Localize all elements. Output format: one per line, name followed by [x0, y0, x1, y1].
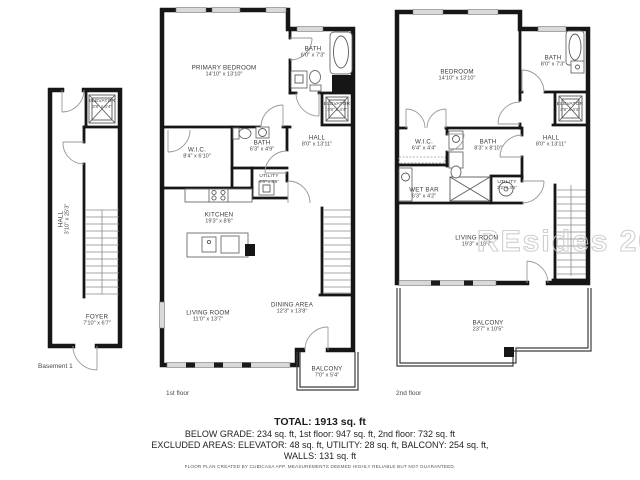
room-label-basement-foyer: FOYER7'10" x 6'7" [83, 314, 111, 327]
floor-label-second: 2nd floor [396, 390, 421, 397]
total-area: TOTAL: 1913 sq. ft [0, 417, 640, 429]
floor-label-basement: Basement 1 [38, 363, 73, 370]
room-label-f2-bedroom: BEDROOM14'10" x 13'10" [439, 69, 476, 82]
toilet-icon [449, 152, 463, 178]
room-label-f2-elevator: ELEVATOR3'8" x 4'4" [557, 102, 583, 112]
shower-icon [450, 177, 490, 201]
sink-icon [291, 71, 307, 88]
room-label-f2-hall: HALL8'0" x 13'11" [536, 135, 566, 148]
kitchen-counter-icon [185, 189, 252, 202]
room-label-f2-utility: UTILITY3'2" x 3'6" [497, 180, 517, 190]
room-label-f1-living-room: LIVING ROOM11'0" x 13'7" [186, 310, 229, 323]
toilet-icon [310, 71, 322, 92]
area-breakdown: BELOW GRADE: 234 sq. ft, 1st floor: 947 … [0, 429, 640, 440]
bathtub-icon [566, 31, 584, 65]
basement-stairs-icon [86, 210, 119, 294]
elevator-icon [84, 92, 119, 127]
room-label-f2-wet-bar: WET BAR6'3" x 4'2" [409, 187, 438, 200]
room-label-f1-balcony: BALCONY7'0" x 5'4" [312, 366, 343, 379]
wall-chase [332, 75, 352, 92]
room-label-f2-bath-top: BATH8'0" x 7'3" [541, 55, 565, 68]
area-summary: TOTAL: 1913 sq. ft BELOW GRADE: 234 sq. … [0, 417, 640, 469]
kitchen-island-icon [187, 233, 255, 257]
excluded-areas: EXCLUDED AREAS: ELEVATOR: 48 sq. ft, UTI… [0, 440, 640, 451]
bathtub-icon [330, 32, 352, 74]
room-label-f1-dining-area: DINING AREA12'3" x 13'8" [271, 302, 313, 315]
disclaimer: FLOOR PLAN CREATED BY CUBICASA APP. MEAS… [0, 464, 640, 469]
room-label-f2-wic: W.I.C.6'4" x 4'4" [412, 139, 436, 152]
room-label-basement-elevator: ELEVATOR3'8" x 4'4" [89, 99, 115, 109]
room-label-f1-wic: W.I.C.8'4" x 6'10" [183, 147, 211, 160]
floor-label-first: 1st floor [166, 390, 189, 397]
room-label-f1-elevator: ELEVATOR3'8" x 4'4" [324, 102, 350, 112]
room-label-f1-hall: HALL8'0" x 13'11" [302, 135, 332, 148]
room-label-f1-bath-top: BATH6'0" x 7'3" [301, 46, 325, 59]
closet-rod [399, 157, 445, 163]
room-label-f1-bath-small: BATH6'3" x 4'9" [250, 140, 274, 153]
first-floor-plan [160, 8, 359, 391]
room-label-f2-balcony: BALCONY23'7" x 10'5" [473, 320, 504, 333]
walls-area: WALLS: 131 sq. ft [0, 451, 640, 462]
room-label-basement-hall: HALL3'10" x 25'3" [58, 204, 71, 235]
room-label-f1-kitchen: KITCHEN19'3" x 8'8" [205, 212, 234, 225]
room-label-f1-utility: UTILITY4'0" x 3'9" [259, 174, 279, 184]
sink-icon [256, 127, 269, 138]
room-label-primary-bedroom: PRIMARY BEDROOM14'10" x 13'10" [192, 65, 257, 78]
watermark: REsides 2026 [477, 225, 640, 259]
floorplan-page: { "watermark": "REsides 2026", "floors":… [0, 0, 640, 480]
sink-icon [571, 61, 584, 73]
room-label-f2-bath: BATH8'3" x 8'10" [474, 139, 502, 152]
first-floor-stairs-icon [324, 210, 351, 293]
toilet-icon [233, 128, 251, 139]
